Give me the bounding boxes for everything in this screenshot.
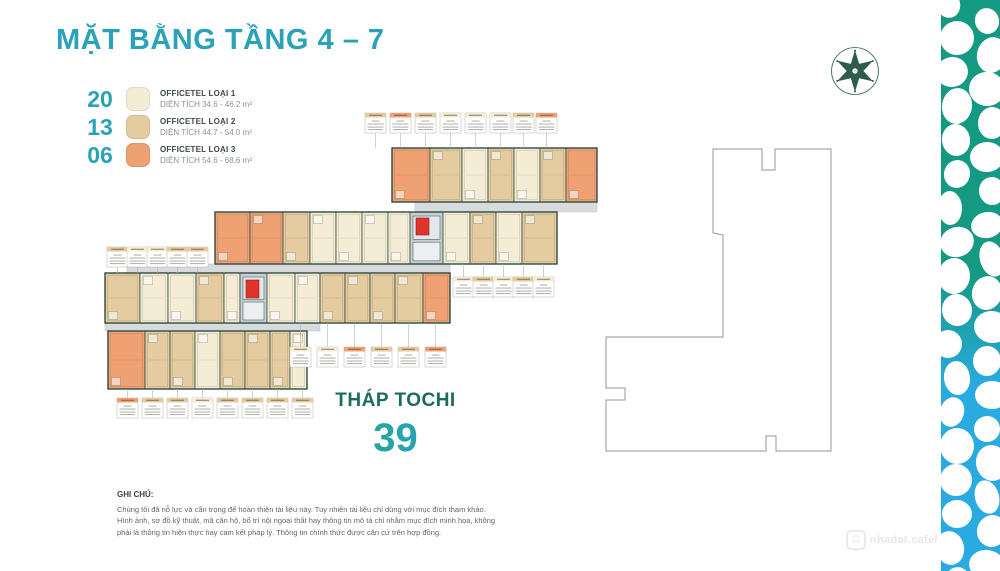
pebble-pattern xyxy=(0,0,1000,571)
page: MẶT BẰNG TẦNG 4 – 7 20 OFFICETEL LOẠI 1 … xyxy=(0,0,1000,571)
